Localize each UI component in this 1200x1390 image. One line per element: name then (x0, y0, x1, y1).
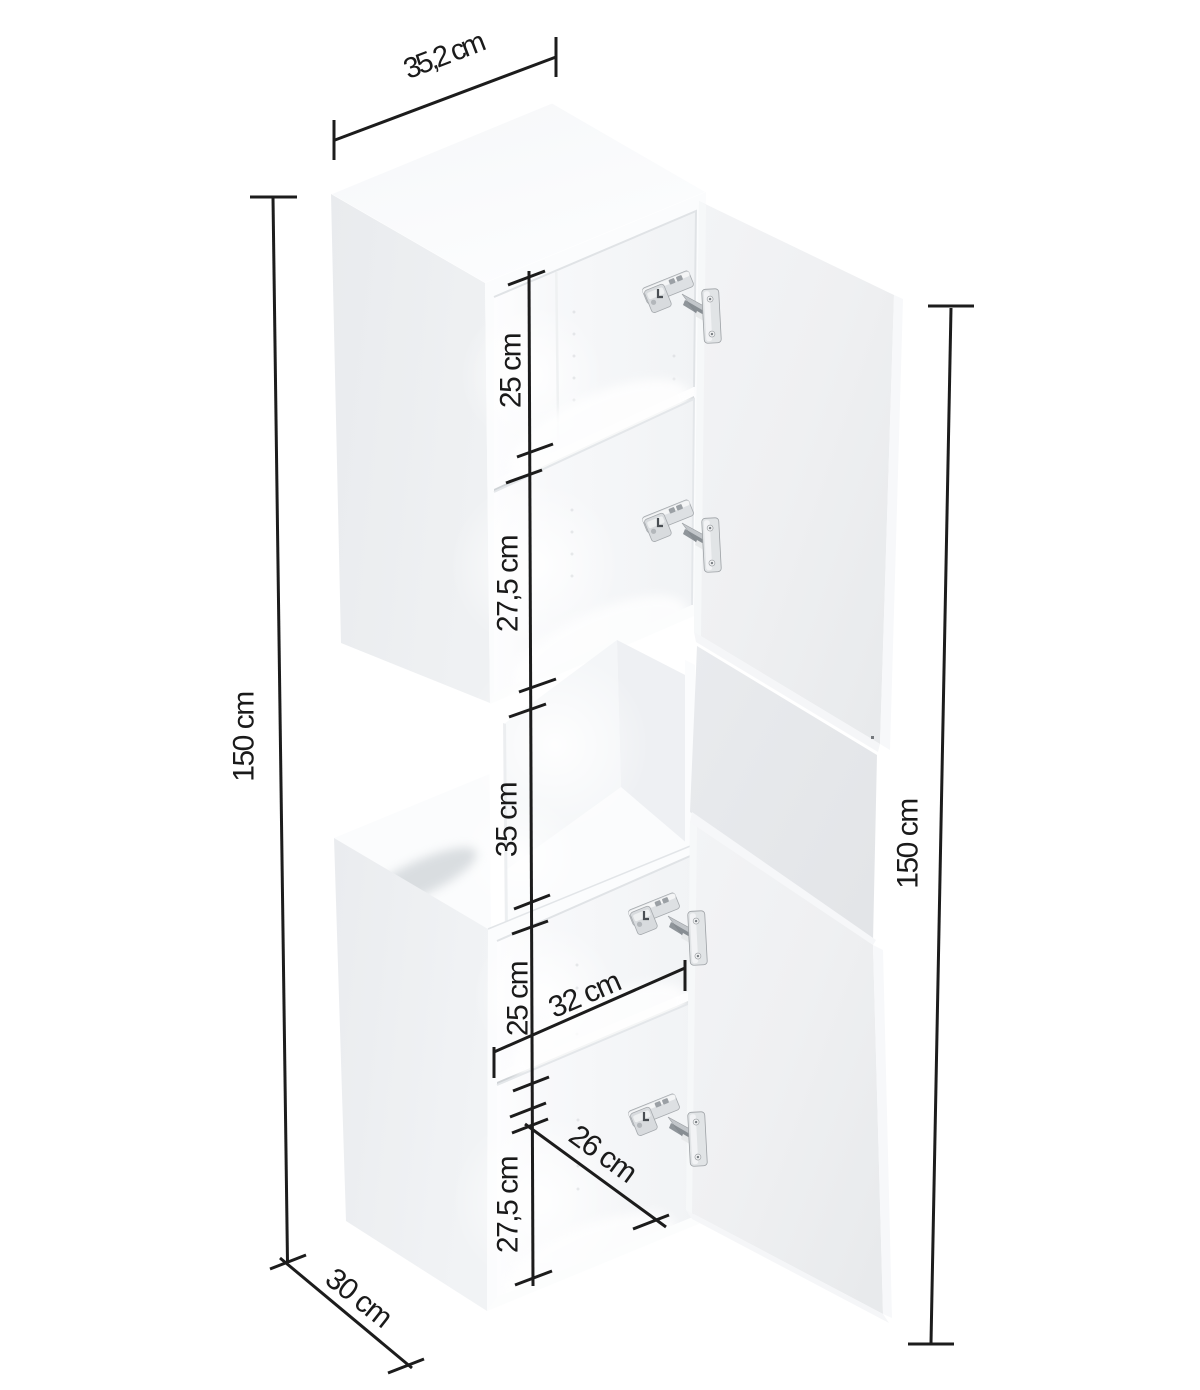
svg-text:25 cm: 25 cm (495, 333, 528, 408)
svg-text:150 cm: 150 cm (228, 692, 261, 782)
svg-text:27,5 cm: 27,5 cm (492, 535, 525, 632)
svg-text:150 cm: 150 cm (892, 799, 925, 889)
svg-text:25 cm: 25 cm (502, 961, 535, 1036)
svg-text:35 cm: 35 cm (491, 782, 524, 857)
svg-text:27,5 cm: 27,5 cm (492, 1156, 525, 1253)
